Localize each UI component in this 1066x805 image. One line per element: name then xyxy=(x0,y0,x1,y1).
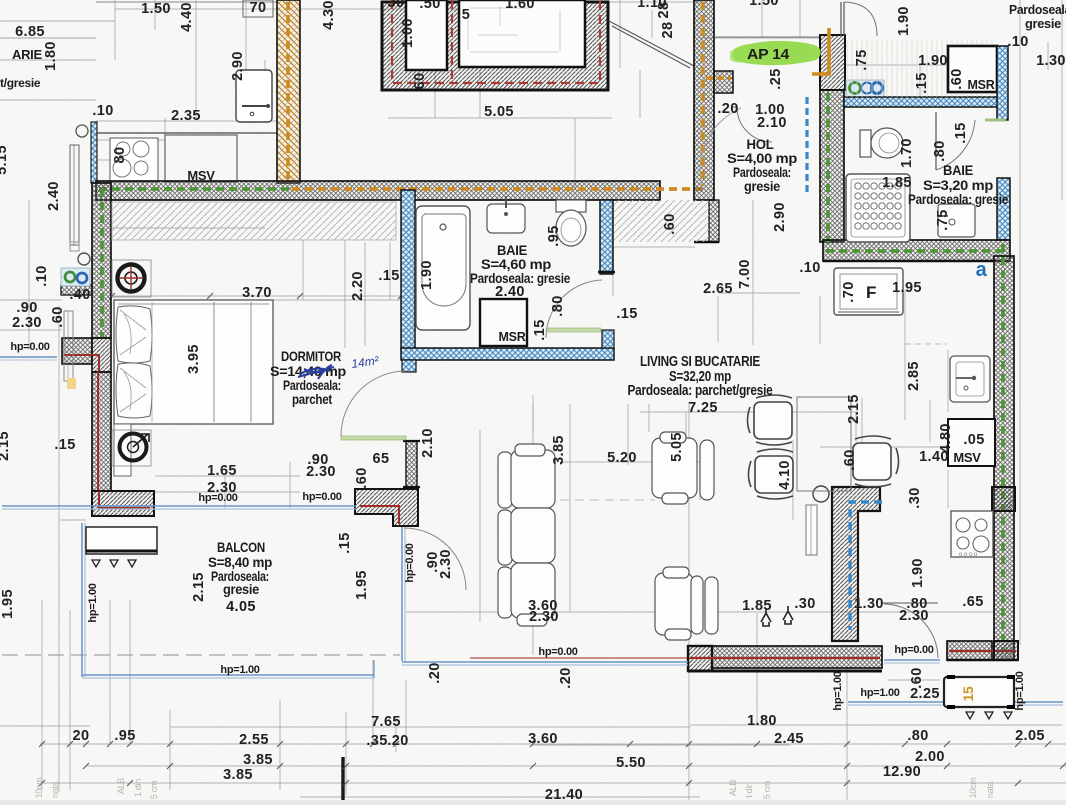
svg-text:.80: .80 xyxy=(550,295,566,316)
svg-text:1.60: 1.60 xyxy=(505,0,535,12)
svg-text:70: 70 xyxy=(250,0,267,16)
svg-text:7.65: 7.65 xyxy=(371,714,401,730)
svg-text:BAIE: BAIE xyxy=(943,162,973,178)
svg-text:Pardoseala: gresie: Pardoseala: gresie xyxy=(908,191,1008,207)
svg-text:60: 60 xyxy=(412,73,428,90)
svg-text:2.55: 2.55 xyxy=(239,732,269,748)
svg-text:.15: .15 xyxy=(616,306,637,322)
svg-text:2.40: 2.40 xyxy=(495,284,525,300)
svg-text:3.60: 3.60 xyxy=(528,731,558,747)
svg-text:nata: nata xyxy=(50,782,60,799)
svg-text:21.40: 21.40 xyxy=(545,787,583,800)
svg-text:.75: .75 xyxy=(935,209,951,230)
svg-text:2.65: 2.65 xyxy=(703,281,733,297)
svg-text:.20: .20 xyxy=(387,733,408,749)
svg-text:.60: .60 xyxy=(354,467,370,488)
svg-text:hp=0.00: hp=0.00 xyxy=(894,644,933,656)
svg-text:hp=0.00: hp=0.00 xyxy=(404,543,416,582)
svg-text:ALB: ALB xyxy=(728,780,738,796)
svg-text:1 din: 1 din xyxy=(133,779,143,797)
svg-text:.60: .60 xyxy=(949,68,965,89)
svg-text:.75: .75 xyxy=(854,49,870,70)
svg-text:.10: .10 xyxy=(799,260,820,276)
svg-text:3.85: 3.85 xyxy=(243,752,273,768)
svg-text:2.85: 2.85 xyxy=(906,361,922,391)
svg-text:7.00: 7.00 xyxy=(737,259,753,289)
svg-text:65: 65 xyxy=(373,451,390,467)
svg-text:hp=1.00: hp=1.00 xyxy=(1014,671,1026,710)
svg-text:1.90: 1.90 xyxy=(918,53,948,69)
svg-text:28: 28 xyxy=(660,22,676,39)
svg-text:.80: .80 xyxy=(907,728,928,744)
svg-text:2.10: 2.10 xyxy=(420,428,436,458)
svg-text:1.30: 1.30 xyxy=(854,596,884,612)
svg-text:hp=0.00: hp=0.00 xyxy=(538,646,577,658)
svg-text:10cm: 10cm xyxy=(968,778,978,799)
svg-text:Pardoseala: parchet/gresie: Pardoseala: parchet/gresie xyxy=(628,383,773,399)
svg-text:1.80: 1.80 xyxy=(43,41,59,71)
svg-text:30: 30 xyxy=(388,0,405,11)
svg-text:2.30: 2.30 xyxy=(12,315,42,331)
svg-text:.35: .35 xyxy=(366,733,387,749)
svg-text:2.30: 2.30 xyxy=(529,609,559,625)
svg-text:2.90: 2.90 xyxy=(772,202,788,232)
svg-text:.15: .15 xyxy=(532,319,548,340)
svg-text:3.70: 3.70 xyxy=(242,285,272,301)
svg-text:3.85: 3.85 xyxy=(223,767,253,783)
svg-text:MSR: MSR xyxy=(968,78,995,92)
svg-text:.60: .60 xyxy=(50,306,66,327)
svg-text:12.90: 12.90 xyxy=(883,764,921,780)
svg-text:1.85: 1.85 xyxy=(882,175,912,191)
svg-text:5.05: 5.05 xyxy=(669,432,685,462)
svg-text:7.25: 7.25 xyxy=(688,400,718,416)
svg-text:ARIE: ARIE xyxy=(12,47,42,62)
svg-text:.60: .60 xyxy=(662,213,678,234)
svg-text:DORMITOR: DORMITOR xyxy=(281,348,341,364)
svg-text:.40: .40 xyxy=(69,287,90,303)
svg-text:parchet: parchet xyxy=(292,391,333,407)
svg-text:.10: .10 xyxy=(34,265,50,286)
svg-text:1.95: 1.95 xyxy=(0,589,16,619)
svg-text:BALCON: BALCON xyxy=(217,539,265,555)
svg-text:1.90: 1.90 xyxy=(896,6,912,36)
svg-text:1.65: 1.65 xyxy=(207,463,237,479)
svg-text:2.10: 2.10 xyxy=(757,115,787,131)
svg-text:2.35: 2.35 xyxy=(171,108,201,124)
svg-text:4.40: 4.40 xyxy=(179,2,195,32)
svg-text:2.45: 2.45 xyxy=(774,731,804,747)
svg-text:.80: .80 xyxy=(932,140,948,161)
svg-text:hp=0.00: hp=0.00 xyxy=(10,341,49,353)
svg-text:5 cm: 5 cm xyxy=(762,781,772,799)
svg-text:28: 28 xyxy=(656,2,672,19)
svg-text:.10: .10 xyxy=(92,103,113,119)
svg-text:.15: .15 xyxy=(378,268,399,284)
svg-text:ALB: ALB xyxy=(116,778,126,794)
svg-text:2.30: 2.30 xyxy=(899,608,929,624)
svg-text:2.90: 2.90 xyxy=(230,51,246,81)
svg-text:gresie: gresie xyxy=(1025,16,1061,31)
svg-text:3.85: 3.85 xyxy=(551,435,567,465)
svg-text:4.05: 4.05 xyxy=(226,599,256,615)
svg-text:t/gresie: t/gresie xyxy=(0,76,41,90)
svg-text:.95: .95 xyxy=(546,225,562,246)
svg-text:MSR: MSR xyxy=(499,330,526,344)
svg-text:.20: .20 xyxy=(717,101,738,117)
svg-text:2.05: 2.05 xyxy=(1015,728,1045,744)
svg-text:2.00: 2.00 xyxy=(915,749,945,765)
svg-text:nata: nata xyxy=(985,782,995,799)
svg-text:LIVING SI BUCATARIE: LIVING SI BUCATARIE xyxy=(640,354,760,370)
svg-text:.70: .70 xyxy=(841,281,857,302)
svg-text:2.30: 2.30 xyxy=(207,480,237,496)
svg-text:2.25: 2.25 xyxy=(910,686,940,702)
svg-text:4.80: 4.80 xyxy=(938,423,954,453)
svg-text:hp=1.00: hp=1.00 xyxy=(860,687,899,699)
svg-text:5.20: 5.20 xyxy=(607,450,637,466)
svg-text:gresie: gresie xyxy=(223,581,259,597)
svg-text:1.85: 1.85 xyxy=(742,598,772,614)
svg-text:1.00: 1.00 xyxy=(400,18,416,48)
svg-text:.05: .05 xyxy=(963,432,984,448)
svg-text:hp=1.00: hp=1.00 xyxy=(832,671,844,710)
svg-text:2.15: 2.15 xyxy=(191,572,207,602)
svg-text:.20: .20 xyxy=(558,667,574,688)
svg-text:2.15: 2.15 xyxy=(846,394,862,424)
svg-text:1.95: 1.95 xyxy=(354,570,370,600)
svg-text:.30: .30 xyxy=(907,487,923,508)
svg-text:2.40: 2.40 xyxy=(46,181,62,211)
svg-text:1.50: 1.50 xyxy=(141,1,171,17)
svg-text:AP 14: AP 14 xyxy=(747,46,790,63)
svg-text:.50: .50 xyxy=(419,0,440,12)
svg-text:F: F xyxy=(866,283,876,302)
svg-text:5.05: 5.05 xyxy=(484,104,514,120)
svg-text:15: 15 xyxy=(960,686,976,701)
svg-text:1.95: 1.95 xyxy=(892,280,922,296)
svg-text:.60: .60 xyxy=(842,449,858,470)
svg-text:hp=1.00: hp=1.00 xyxy=(220,664,259,676)
svg-text:.65: .65 xyxy=(962,594,983,610)
svg-text:1.30: 1.30 xyxy=(1036,53,1066,69)
svg-text:hp=1.00: hp=1.00 xyxy=(87,583,99,622)
svg-text:.15: .15 xyxy=(54,437,75,453)
svg-text:.20: .20 xyxy=(427,662,443,683)
svg-text:4.10: 4.10 xyxy=(777,460,793,490)
svg-text:a: a xyxy=(976,259,988,281)
svg-text:o o o o: o o o o xyxy=(959,552,978,558)
svg-text:.15: .15 xyxy=(914,72,930,93)
svg-text:2.15: 2.15 xyxy=(0,431,12,461)
svg-text:MSV: MSV xyxy=(953,450,981,465)
svg-text:5.50: 5.50 xyxy=(616,755,646,771)
svg-text:6.85: 6.85 xyxy=(15,24,45,40)
svg-text:1.90: 1.90 xyxy=(910,558,926,588)
svg-text:Pardoseala: Pardoseala xyxy=(1009,2,1066,17)
svg-text:2.30: 2.30 xyxy=(438,549,454,579)
svg-text:5 cm: 5 cm xyxy=(149,781,159,799)
svg-text:1.50: 1.50 xyxy=(749,0,779,9)
svg-text:gresie: gresie xyxy=(744,178,780,194)
svg-text:3.95: 3.95 xyxy=(186,344,202,374)
svg-text:2.20: 2.20 xyxy=(350,271,366,301)
svg-text:1.70: 1.70 xyxy=(899,138,915,168)
svg-text:.25: .25 xyxy=(768,68,784,89)
svg-text:5.15: 5.15 xyxy=(0,145,10,175)
svg-text:.90: .90 xyxy=(16,300,37,316)
svg-text:hp=0.00: hp=0.00 xyxy=(302,491,341,503)
svg-text:1.90: 1.90 xyxy=(419,260,435,290)
svg-text:.10: .10 xyxy=(1007,34,1028,50)
svg-text:5: 5 xyxy=(462,7,470,23)
svg-text:.95: .95 xyxy=(114,728,135,744)
svg-text:20: 20 xyxy=(73,728,90,744)
svg-text:10cm: 10cm xyxy=(34,778,44,799)
svg-text:.30: .30 xyxy=(794,596,815,612)
svg-text:80: 80 xyxy=(112,147,128,164)
svg-text:t din: t din xyxy=(744,782,754,798)
svg-text:.15: .15 xyxy=(953,122,969,143)
svg-text:.15: .15 xyxy=(337,532,353,553)
svg-text:4.30: 4.30 xyxy=(321,0,337,30)
svg-text:2.30: 2.30 xyxy=(306,464,336,480)
svg-text:1.80: 1.80 xyxy=(747,713,777,729)
